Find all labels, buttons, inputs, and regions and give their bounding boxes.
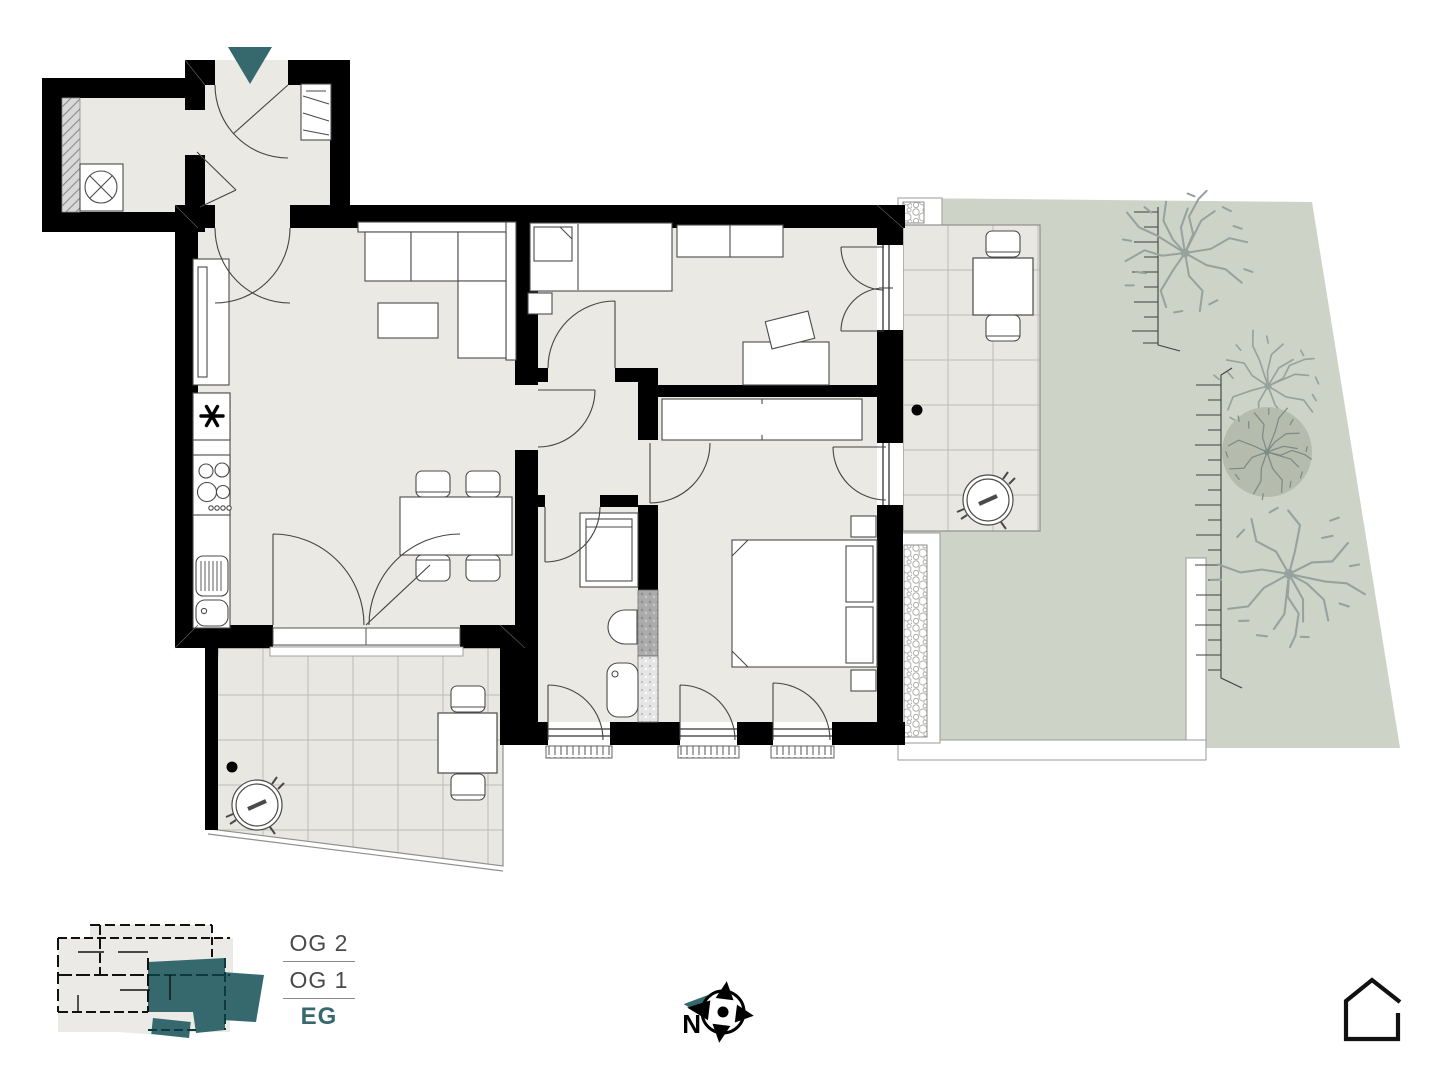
nightstand [851,670,876,691]
shower [580,513,638,587]
floor-selector-og1[interactable]: OG 1 [290,965,349,995]
installation-shaft [638,590,658,722]
floor-selector-eg-active[interactable]: EG [301,1002,338,1032]
kitchen-sink [196,556,228,626]
terrace-left [205,648,505,871]
washing-machine [80,164,123,211]
house-outline-icon[interactable] [1346,980,1400,1039]
kitchen [193,259,231,628]
double-bed [732,540,877,667]
divider [283,961,355,962]
compass-north-label: N [682,1009,701,1039]
storage-shelf-hatch [62,98,80,212]
nightstand [528,293,552,314]
toilet [607,663,638,717]
floor-selector: OG 2 OG 1 EG [281,928,357,1032]
wardrobe [662,399,862,440]
drain-dot-right [912,405,923,416]
floor-selector-og2[interactable]: OG 2 [290,928,349,958]
terrace-door-threshold [270,628,463,656]
nightstand [851,516,876,537]
drain-dot-left [227,762,238,773]
stove [193,455,231,515]
floor-plan-svg: N [0,0,1440,1080]
washbasin [608,610,637,644]
storage-room [80,164,123,211]
divider [283,998,355,999]
compass-rose-icon: N [682,980,755,1044]
floor-plan-page: N OG 2 OG 1 EG [0,0,1440,1080]
coat-rack [301,84,331,140]
dining-table [400,497,512,555]
sideboard [677,225,783,257]
single-bed [530,223,672,291]
terrace-right [903,225,1040,531]
overview-map [58,925,264,1038]
coffee-table [378,303,438,338]
overview-highlighted-unit [148,958,264,1038]
